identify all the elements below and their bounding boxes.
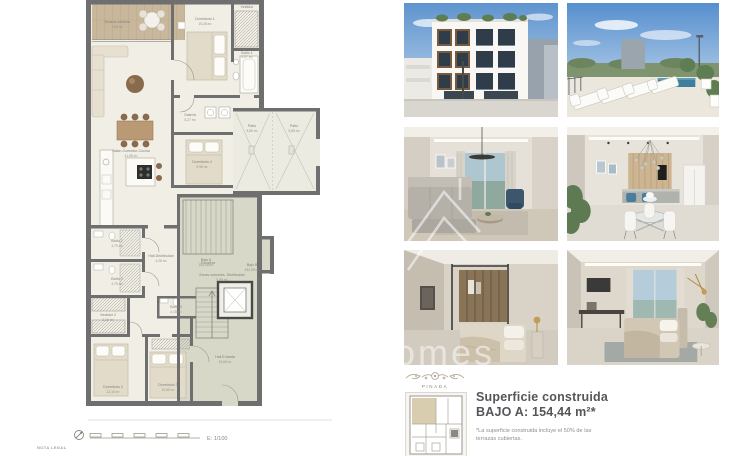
svg-text:152,69 m²: 152,69 m² [245,268,261,272]
photo-dining-kitchen [567,127,719,241]
svg-text:5,27 m²: 5,27 m² [184,118,196,122]
surface-footnote: *La superficie construida incluye el 50%… [476,427,608,444]
svg-text:4,57 m²: 4,57 m² [241,55,253,59]
svg-text:3,16 m²: 3,16 m² [102,318,114,322]
mini-floor-plan-thumbnail [405,392,467,456]
room-label-zonas-comunes: Zonas comunes. Distribuidor [199,273,246,277]
svg-text:9,89 m²: 9,89 m² [246,129,258,133]
room-label-vestidor2: Vestidor 2 [100,313,116,317]
room-label-vestidor1: Vestidor [241,5,255,9]
facade-windows [437,29,517,90]
room-label-galeria: Galería [184,113,196,117]
room-label-dormitorio1: Dormitorio 1 [195,17,215,21]
photo-building-facade [404,3,558,117]
svg-text:10,60 m²: 10,60 m² [161,388,175,392]
svg-text:9,85 m²: 9,85 m² [288,129,300,133]
svg-text:9,98 m²: 9,98 m² [196,165,208,169]
svg-text:7,60 m²: 7,60 m² [111,25,123,29]
room-label-bano2: Baño 2 [111,239,122,243]
room-label-dormitorio3: Dormitorio 3 [158,383,178,387]
svg-text:4,15 m²: 4,15 m² [170,310,182,314]
nota-legal-label: NOTA LEGAL [37,445,67,450]
scale-bar: E: 1/100 [75,431,228,443]
scale-label: E: 1/100 [207,436,228,442]
room-label-dormitorio4: Dormitorio 4 [192,160,212,164]
svg-text:12,16 m²: 12,16 m² [106,390,120,394]
room-label-hall-entrada: Hall Entrada [215,355,235,359]
svg-text:5,89 m²: 5,89 m² [216,278,228,282]
brand-name: PINADA [400,384,470,389]
room-label-patio2: Patio [290,124,298,128]
room-label-bano4: Baño 4 [170,305,181,309]
surface-title-line2: BAJO A: 154,44 m²* [476,405,676,420]
room-label-bajo-b: Bajo B [247,263,258,267]
svg-text:4,25 m²: 4,25 m² [155,259,167,263]
brochure-page: Terraza cubierta 7,60 m² Dormitorio 1 15… [0,0,756,456]
sofa [408,177,476,233]
room-label-bano1: Baño 1 [241,51,252,55]
room-label-patio1: Patio [248,124,256,128]
svg-text:19,60 m²: 19,60 m² [218,360,232,364]
svg-text:41,05 m²: 41,05 m² [124,154,138,158]
floor-plan-drawing: Terraza cubierta 7,60 m² Dormitorio 1 15… [0,0,378,456]
surface-title-line1: Superficie construida [476,390,676,405]
brand-logo: PINADA [400,370,470,389]
floor-plan: Terraza cubierta 7,60 m² Dormitorio 1 15… [0,0,378,456]
svg-text:15,28 m²: 15,28 m² [198,22,212,26]
room-label-dormitorio2: Dormitorio 2 [103,385,123,389]
surface-summary: Superficie construida BAJO A: 154,44 m²*… [476,390,676,443]
room-label-bano3: Baño 3 [111,277,122,281]
photo-bedroom-dressing [404,250,558,365]
photo-living-room [404,127,558,241]
photo-rooftop-terrace [567,3,719,117]
room-label-salon: Salón-Comedor-Cocina [112,149,150,153]
svg-text:4,79 m²: 4,79 m² [111,244,123,248]
brand-emblem-icon [404,370,466,383]
bed [460,324,526,362]
photo-bedroom-window [567,250,719,365]
room-label-hall-distribuidor: Hall-Distribuidor [148,254,174,258]
svg-text:4,79 m²: 4,79 m² [111,282,123,286]
room-label-bajo-a: Bajo A [201,258,212,262]
room-label-terraza: Terraza cubierta [104,20,130,24]
svg-text:154,44 m²: 154,44 m² [199,263,215,267]
